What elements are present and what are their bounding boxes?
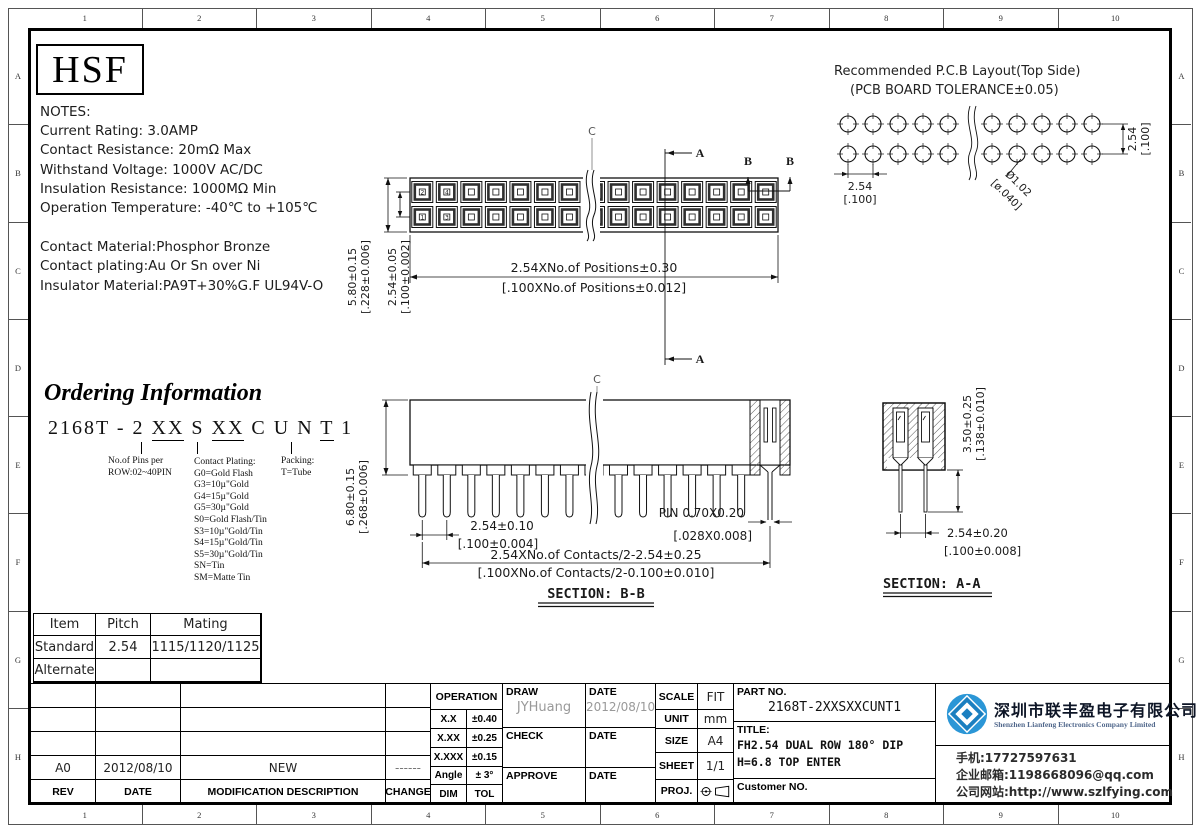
- dim-label: [.100]: [1139, 122, 1152, 155]
- ruler-zone-10: 10: [1059, 8, 1173, 28]
- ordering-pins-note: No.of Pins per ROW:02~40PIN: [108, 456, 172, 479]
- dim-label: [.100XNo.of Positions±0.012]: [502, 280, 686, 295]
- material-line: Contact Material:Phosphor Bronze: [40, 238, 370, 257]
- revision-cell: [30, 707, 96, 732]
- part-no-value: 2168T-2XXSXXCUNT1: [734, 700, 935, 715]
- title-block: DRAW JYHuang DATE 2012/08/10 CHECK DATE …: [30, 683, 1170, 803]
- company-name-cn: 深圳市联丰盈电子有限公司: [994, 697, 1198, 721]
- mating-header: Pitch: [96, 614, 151, 636]
- revision-cell: [385, 731, 431, 756]
- table-row: ItemPitchMating: [34, 614, 261, 636]
- sheet-label: SHEET: [655, 752, 698, 780]
- dim-label: [.100XNo.of Contacts/2-0.100±0.010]: [478, 565, 715, 580]
- hsf-logo-text: HSF: [52, 48, 128, 92]
- tolerance-cell: X.X: [430, 709, 467, 729]
- ruler-zone-C: C: [8, 223, 28, 320]
- check-date-label: DATE: [586, 728, 655, 744]
- size-value: A4: [697, 728, 734, 753]
- revision-cell: [385, 683, 431, 708]
- ruler-zone-9: 9: [944, 8, 1059, 28]
- ordering-title: Ordering Information: [44, 380, 262, 407]
- ruler-top: 12345678910: [28, 8, 1172, 28]
- note-line: Contact Resistance: 20mΩ Max: [40, 141, 370, 160]
- dim-label: [.228±0.006]: [359, 240, 372, 314]
- packing-option: T=Tube: [281, 468, 314, 480]
- scale-label: SCALE: [655, 683, 698, 710]
- revision-cell: [180, 683, 386, 708]
- tolerance-cell: TOL: [466, 784, 503, 804]
- check-label: CHECK: [503, 728, 585, 744]
- approve-cell: APPROVE: [502, 767, 586, 803]
- dim-label: 2.54XNo.of Positions±0.30: [511, 260, 678, 275]
- revision-cell: [180, 707, 386, 732]
- notes-block: NOTES: Current Rating: 3.0AMPContact Res…: [40, 103, 370, 296]
- ruler-zone-D: D: [1172, 320, 1191, 417]
- ordering-part-code: 2168T - 2 XX S XX C U N T 1: [48, 417, 353, 440]
- scale-value: FIT: [697, 683, 734, 710]
- section-a-label: A: [696, 352, 705, 366]
- ruler-zone-4: 4: [372, 805, 487, 824]
- part-title-cell: TITLE: FH2.54 DUAL ROW 180° DIP H=6.8 TO…: [733, 721, 936, 779]
- ruler-zone-7: 7: [715, 805, 830, 824]
- ruler-zone-2: 2: [143, 8, 258, 28]
- draw-date: 2012/08/10: [586, 700, 655, 714]
- plating-option: G5=30µ"Gold: [194, 503, 267, 515]
- dim-label: [.100]: [843, 193, 876, 206]
- ruler-zone-D: D: [8, 320, 28, 417]
- notes-title: NOTES:: [40, 103, 370, 122]
- ruler-zone-5: 5: [486, 805, 601, 824]
- dim-label: 2.54: [848, 180, 873, 193]
- mating-cell: 2.54: [96, 636, 151, 659]
- ordering-packing: Packing: T=Tube: [281, 456, 314, 479]
- revision-cell: [180, 731, 386, 756]
- section-aa-drawing: 3.50±0.25[.138±0.010]2.54±0.20[.100±0.00…: [840, 372, 1060, 610]
- tolerance-cell: Angle: [430, 766, 467, 785]
- notes-lines: Current Rating: 3.0AMPContact Resistance…: [40, 122, 370, 218]
- tolerance-cell: X.XXX: [430, 747, 467, 767]
- contact-number: 3: [445, 215, 449, 222]
- leader-tick: [197, 442, 198, 454]
- company-contact-cell: 手机:17727597631 企业邮箱:1198668096@qq.com 公司…: [935, 745, 1170, 803]
- note-line: Insulation Resistance: 1000MΩ Min: [40, 180, 370, 199]
- pcb-layout-title: Recommended P.C.B Layout(Top Side): [834, 64, 1080, 79]
- revision-cell: ------: [385, 755, 431, 780]
- tolerance-cell: X.XX: [430, 728, 467, 748]
- ruler-left: ABCDEFGH: [8, 28, 28, 805]
- part-title-line1: FH2.54 DUAL ROW 180° DIP: [734, 738, 935, 752]
- ruler-zone-8: 8: [830, 805, 945, 824]
- dim-label: 2.54±0.20: [947, 526, 1008, 540]
- section-b-label: B: [786, 154, 794, 168]
- ruler-zone-C: C: [1172, 223, 1191, 320]
- plating-option: G4=15µ"Gold: [194, 492, 267, 504]
- proj-label: PROJ.: [655, 779, 698, 803]
- proj-symbol-cell: [697, 779, 734, 803]
- dim-label: 2.54±0.10: [470, 519, 534, 533]
- ruler-zone-6: 6: [601, 805, 716, 824]
- ruler-zone-10: 10: [1059, 805, 1173, 824]
- hsf-logo: HSF: [36, 44, 144, 95]
- revision-cell: [95, 731, 181, 756]
- mating-header: Item: [34, 614, 96, 636]
- ruler-zone-8: 8: [830, 8, 945, 28]
- approve-label: APPROVE: [503, 768, 585, 784]
- mating-cell: Alternate: [34, 659, 96, 682]
- company-phone: 手机:17727597631: [956, 750, 1169, 767]
- dim-label: PIN 0.70X0.20: [659, 506, 744, 520]
- draw-date-label: DATE: [586, 684, 655, 700]
- table-row: Alternate: [34, 659, 261, 682]
- revision-cell: [30, 731, 96, 756]
- dim-label: 2.54±0.05: [386, 248, 399, 306]
- tolerance-cell: ±0.15: [466, 747, 503, 767]
- mating-cell: 1115/1120/1125: [151, 636, 261, 659]
- company-website: 公司网站:http://www.szlfying.com: [956, 784, 1169, 801]
- tolerance-header: OPERATION: [430, 683, 503, 710]
- tolerance-cell: ±0.25: [466, 728, 503, 748]
- ruler-zone-F: F: [1172, 514, 1191, 611]
- plating-option: G3=10µ"Gold: [194, 480, 267, 492]
- dim-label: [.100±0.008]: [944, 544, 1021, 558]
- check-cell: CHECK: [502, 727, 586, 768]
- size-label: SIZE: [655, 728, 698, 753]
- plating-option: G0=Gold Flash: [194, 469, 267, 481]
- section-bb-label: SECTION: B-B: [547, 586, 645, 602]
- dim-label: 6.80±0.15: [344, 468, 357, 526]
- plating-option: S4=15µ"Gold/Tin: [194, 538, 267, 550]
- approve-date-label: DATE: [586, 768, 655, 784]
- contact-number: 1: [420, 215, 424, 222]
- ruler-zone-H: H: [8, 709, 28, 805]
- revision-cell: 2012/08/10: [95, 755, 181, 780]
- draw-label: DRAW: [503, 684, 585, 700]
- ruler-zone-2: 2: [143, 805, 258, 824]
- unit-label: UNIT: [655, 709, 698, 729]
- ruler-zone-1: 1: [28, 8, 143, 28]
- contact-number: 4: [445, 190, 449, 197]
- ruler-zone-1: 1: [28, 805, 143, 824]
- drawing-sheet: 12345678910 12345678910 ABCDEFGH ABCDEFG…: [0, 0, 1200, 832]
- revision-header: MODIFICATION DESCRIPTION: [180, 779, 386, 804]
- dim-label: 2.54: [1126, 127, 1139, 152]
- mating-header: Mating: [151, 614, 261, 636]
- connector-top-view: 2143C5.80±0.15[.228±0.006]2.54±0.05[.100…: [340, 125, 810, 372]
- mating-cell: [96, 659, 151, 682]
- dim-label: 5.80±0.15: [346, 248, 359, 306]
- customer-no-cell: Customer NO.: [733, 778, 936, 803]
- tolerance-cell: ± 3°: [466, 766, 503, 785]
- ruler-zone-6: 6: [601, 8, 716, 28]
- draw-cell: DRAW JYHuang: [502, 683, 586, 728]
- revision-header: CHANGE: [385, 779, 431, 804]
- plating-option: S0=Gold Flash/Tin: [194, 515, 267, 527]
- tolerance-cell: ±0.40: [466, 709, 503, 729]
- ruler-zone-3: 3: [257, 805, 372, 824]
- plating-option: S3=10µ"Gold/Tin: [194, 527, 267, 539]
- revision-header: REV: [30, 779, 96, 804]
- company-name-en: Shenzhen Lianfeng Electronics Company Li…: [994, 720, 1155, 729]
- dim-label: [.138±0.010]: [974, 387, 987, 461]
- code-segment: C U N: [244, 417, 320, 439]
- draw-name: JYHuang: [503, 700, 585, 715]
- dim-label: 3.50±0.25: [961, 395, 974, 453]
- check-date-cell: DATE: [585, 727, 656, 768]
- dim-label: [.268±0.006]: [357, 460, 370, 534]
- plating-title: Contact Plating:: [194, 457, 267, 469]
- leader-tick: [141, 442, 142, 454]
- part-title-line2: H=6.8 TOP ENTER: [734, 752, 935, 769]
- part-title-label: TITLE:: [734, 722, 935, 738]
- pins-note-line1: No.of Pins per: [108, 456, 172, 468]
- notes-materials: Contact Material:Phosphor BronzeContact …: [40, 238, 370, 296]
- centerline-label: C: [588, 125, 596, 138]
- plating-option: S5=30µ"Gold/Tin: [194, 550, 267, 562]
- ruler-zone-9: 9: [944, 805, 1059, 824]
- ruler-zone-4: 4: [372, 8, 487, 28]
- material-line: Contact plating:Au Or Sn over Ni: [40, 257, 370, 276]
- ruler-zone-E: E: [8, 417, 28, 514]
- revision-header: DATE: [95, 779, 181, 804]
- sheet-value: 1/1: [697, 752, 734, 780]
- revision-cell: A0: [30, 755, 96, 780]
- dim-label: [.028X0.008]: [673, 529, 752, 543]
- dim-label: 2.54XNo.of Contacts/2-2.54±0.25: [490, 547, 701, 562]
- approve-date-cell: DATE: [585, 767, 656, 803]
- pcb-layout-subtitle: (PCB BOARD TOLERANCE±0.05): [850, 83, 1059, 98]
- note-line: Withstand Voltage: 1000V AC/DC: [40, 161, 370, 180]
- revision-cell: [95, 683, 181, 708]
- centerline-label: C: [593, 373, 601, 386]
- customer-no-label: Customer NO.: [734, 779, 935, 795]
- mating-cell: Standard: [34, 636, 96, 659]
- company-email: 企业邮箱:1198668096@qq.com: [956, 767, 1169, 784]
- ruler-zone-A: A: [8, 28, 28, 125]
- ruler-zone-G: G: [8, 612, 28, 709]
- mating-cell: [151, 659, 261, 682]
- revision-cell: NEW: [180, 755, 386, 780]
- ordering-plating: Contact Plating: G0=Gold FlashG3=10µ"Gol…: [194, 457, 267, 585]
- ruler-zone-3: 3: [257, 8, 372, 28]
- unit-value: mm: [697, 709, 734, 729]
- pins-note-line2: ROW:02~40PIN: [108, 468, 172, 480]
- code-segment: T: [320, 417, 334, 441]
- ruler-zone-H: H: [1172, 709, 1191, 805]
- code-segment: S: [184, 417, 211, 439]
- revision-cell: [95, 707, 181, 732]
- company-logo-icon: [944, 691, 990, 737]
- section-a-label: A: [696, 146, 705, 160]
- table-row: Standard2.541115/1120/1125: [34, 636, 261, 659]
- note-line: Current Rating: 3.0AMP: [40, 122, 370, 141]
- pcb-layout-drawing: 2.54[.100]2.54[.100]Ø1.02[ø.040]: [820, 98, 1180, 233]
- section-b-label: B: [744, 154, 752, 168]
- revision-cell: [385, 707, 431, 732]
- part-no-label: PART NO.: [734, 684, 935, 700]
- plating-option: SN=Tin: [194, 561, 267, 573]
- section-aa-label: SECTION: A-A: [883, 576, 981, 592]
- mating-table: ItemPitchMatingStandard2.541115/1120/112…: [33, 613, 262, 683]
- leader-tick: [291, 442, 292, 454]
- ruler-bottom: 12345678910: [28, 805, 1172, 824]
- plating-option: SM=Matte Tin: [194, 573, 267, 585]
- draw-date-cell: DATE 2012/08/10: [585, 683, 656, 728]
- ruler-zone-G: G: [1172, 612, 1191, 709]
- contact-number: 2: [420, 190, 424, 197]
- tolerance-cell: DIM: [430, 784, 467, 804]
- company-header-cell: 深圳市联丰盈电子有限公司 Shenzhen Lianfeng Electroni…: [935, 683, 1170, 746]
- code-segment: XX: [212, 417, 245, 441]
- ruler-zone-B: B: [8, 125, 28, 222]
- ruler-zone-F: F: [8, 514, 28, 611]
- revision-cell: [30, 683, 96, 708]
- section-bb-drawing: C6.80±0.15[.268±0.006]2.54±0.10[.100±0.0…: [340, 372, 820, 610]
- part-no-cell: PART NO. 2168T-2XXSXXCUNT1: [733, 683, 936, 722]
- ruler-zone-5: 5: [486, 8, 601, 28]
- ruler-zone-7: 7: [715, 8, 830, 28]
- code-segment: XX: [152, 417, 185, 441]
- packing-title: Packing:: [281, 456, 314, 468]
- material-line: Insulator Material:PA9T+30%G.F UL94V-O: [40, 277, 370, 296]
- projection-icon: [699, 783, 732, 800]
- ruler-zone-E: E: [1172, 417, 1191, 514]
- note-line: Operation Temperature: -40℃ to +105℃: [40, 199, 370, 218]
- code-segment: 2168T - 2: [48, 417, 152, 439]
- plating-options: G0=Gold FlashG3=10µ"GoldG4=15µ"GoldG5=30…: [194, 469, 267, 585]
